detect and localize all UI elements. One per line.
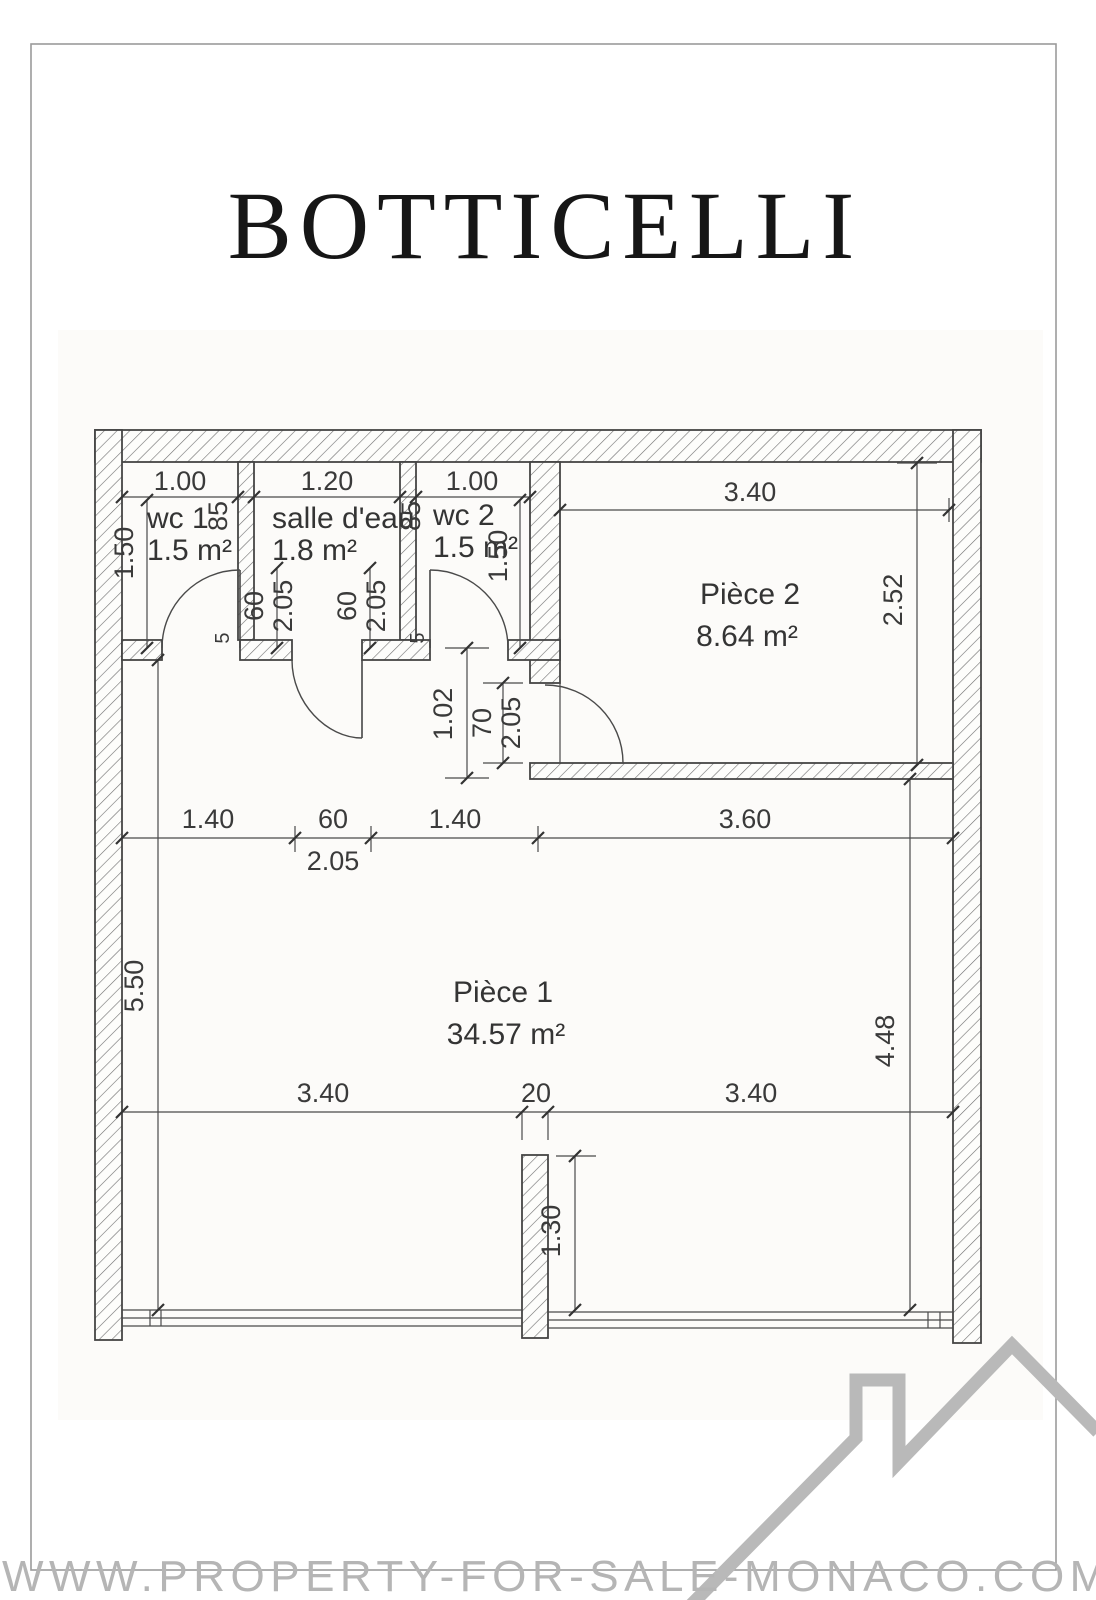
- dim-mid-seg2: 60: [318, 804, 348, 834]
- dim-right-height: 4.48: [870, 1015, 900, 1068]
- dim-wc1-depth: 85: [203, 501, 233, 531]
- wall-wet-bottom-seg4: [508, 640, 560, 660]
- dim-pillar-offset: 1.30: [536, 1205, 566, 1258]
- wall-wet-bottom-seg2: [240, 640, 292, 660]
- dim-threshold2: 5: [407, 632, 429, 643]
- watermark: WWW.PROPERTY-FOR-SALE-MONACO.COM: [2, 1552, 1096, 1600]
- dim-bottom-seg3: 3.40: [725, 1078, 778, 1108]
- dim-left-height: 5.50: [119, 960, 149, 1013]
- dim-wc1-width: 1.00: [154, 466, 207, 496]
- dim-bottom-seg2: 20: [521, 1078, 551, 1108]
- dim-mid-seg1: 1.40: [182, 804, 235, 834]
- dim-bottom-seg1: 3.40: [297, 1078, 350, 1108]
- dim-door1-height: 2.05: [268, 580, 298, 633]
- page-title: BOTTICELLI: [228, 172, 863, 279]
- wall-right: [953, 430, 981, 1343]
- dim-mid-seg3: 1.40: [429, 804, 482, 834]
- floor-plan-page: BOTTICELLI: [0, 0, 1096, 1600]
- dim-door2-width: 60: [332, 591, 362, 621]
- room-piece2-area: 8.64 m²: [696, 620, 798, 653]
- dim-piece2-width: 3.40: [724, 477, 777, 507]
- dim-door1-width: 60: [239, 591, 269, 621]
- dim-hall-width: 1.02: [428, 688, 458, 741]
- room-piece1-area: 34.57 m²: [447, 1018, 565, 1051]
- dim-door2-height: 2.05: [361, 580, 391, 633]
- wall-top: [95, 430, 981, 462]
- dim-piece2-height: 2.52: [878, 574, 908, 627]
- dim-piece2-door-width: 70: [467, 708, 497, 738]
- dim-salle-width: 1.20: [301, 466, 354, 496]
- wall-wet-bottom-seg1: [122, 640, 162, 660]
- dim-wc2-height: 1.50: [483, 530, 513, 583]
- room-wc1-name: wc 1: [146, 502, 209, 535]
- dim-wc2-depth: 85: [396, 501, 426, 531]
- dim-wc2-width: 1.00: [446, 466, 499, 496]
- room-salle-area: 1.8 m²: [272, 534, 357, 567]
- dim-threshold1: 5: [212, 632, 234, 643]
- wall-piece2-bottom: [530, 763, 953, 779]
- dim-mid-seg2-height: 2.05: [307, 846, 360, 876]
- room-wc2-name: wc 2: [432, 499, 495, 532]
- room-wc1-area: 1.5 m²: [147, 534, 232, 567]
- wall-salle-wc2: [400, 462, 416, 640]
- dim-wc1-height: 1.50: [109, 527, 139, 580]
- dim-mid-seg4: 3.60: [719, 804, 772, 834]
- room-piece2-name: Pièce 2: [700, 578, 800, 611]
- dim-piece2-door-height: 2.05: [496, 697, 526, 750]
- room-salle-name: salle d'eau: [272, 502, 415, 535]
- room-piece1-name: Pièce 1: [453, 976, 553, 1009]
